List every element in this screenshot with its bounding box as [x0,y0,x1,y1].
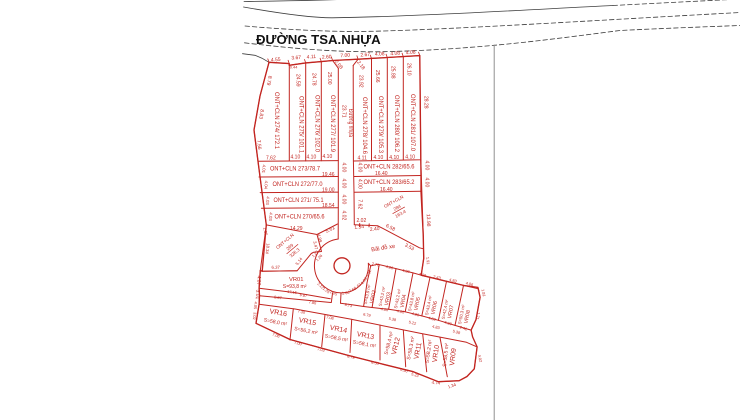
svg-text:19.00: 19.00 [322,187,335,193]
svg-text:23.71: 23.71 [341,105,347,118]
svg-text:24.78: 24.78 [311,73,317,86]
svg-text:ONT+CLN 275/ 101.1: ONT+CLN 275/ 101.1 [298,96,304,154]
svg-text:26.10: 26.10 [406,63,412,76]
svg-text:4.55: 4.55 [271,57,281,64]
svg-text:2.18: 2.18 [355,60,366,72]
svg-text:ONT+CLN 270/65.6: ONT+CLN 270/65.6 [275,214,326,221]
svg-text:25.88: 25.88 [390,66,396,79]
svg-text:ONT+CLN 279/ 105.3: ONT+CLN 279/ 105.3 [377,96,383,154]
svg-text:16.40: 16.40 [375,171,388,177]
svg-text:5.22: 5.22 [408,319,417,326]
svg-text:1.05: 1.05 [329,289,338,296]
svg-text:4.02: 4.02 [477,354,483,362]
svg-text:VR05: VR05 [414,297,422,311]
svg-text:4.00: 4.00 [396,308,405,314]
svg-text:18.34: 18.34 [264,243,270,255]
svg-text:28.28: 28.28 [423,96,429,109]
svg-text:7.62: 7.62 [266,156,276,162]
svg-text:VR14: VR14 [329,325,348,335]
svg-text:7.00: 7.00 [340,53,350,60]
svg-text:VR09: VR09 [449,348,458,366]
svg-text:7.03: 7.03 [317,346,326,353]
svg-text:VR15: VR15 [298,317,317,327]
svg-text:ONT+CLN 280/ 106.2: ONT+CLN 280/ 106.2 [393,95,399,153]
svg-text:4.09: 4.09 [418,271,427,278]
svg-text:6.37: 6.37 [271,265,280,270]
svg-text:4.10: 4.10 [307,154,317,160]
svg-text:4.08: 4.08 [375,51,385,58]
svg-text:4.10: 4.10 [323,154,333,160]
svg-text:4.00: 4.00 [380,306,389,312]
svg-text:3.67: 3.67 [291,55,301,62]
svg-text:16.40: 16.40 [380,187,393,193]
svg-text:6.79: 6.79 [363,312,371,318]
svg-text:5.61: 5.61 [325,225,337,235]
svg-text:3.02: 3.02 [252,312,258,320]
svg-text:ONT+CLN 282/65.6: ONT+CLN 282/65.6 [364,163,416,170]
svg-text:2.31: 2.31 [365,269,372,278]
svg-text:2.67: 2.67 [360,52,370,59]
svg-text:4.00: 4.00 [341,163,347,173]
svg-text:14.29: 14.29 [290,226,303,232]
svg-text:4.00: 4.00 [423,178,429,188]
svg-text:6.58: 6.58 [385,223,397,233]
svg-text:VR06: VR06 [431,301,439,315]
svg-text:8.73: 8.73 [344,302,352,308]
svg-text:1.81: 1.81 [481,289,487,297]
svg-text:VR10: VR10 [432,344,441,362]
svg-text:7.30: 7.30 [297,308,306,315]
svg-text:1.34: 1.34 [447,382,457,390]
svg-text:8.83: 8.83 [257,109,265,120]
svg-text:ONT+CLN 283/65.2: ONT+CLN 283/65.2 [364,179,416,186]
svg-text:13.98: 13.98 [425,214,431,227]
svg-text:18.54: 18.54 [322,203,335,209]
svg-text:3.01: 3.01 [254,289,261,299]
svg-text:24.59: 24.59 [295,74,301,87]
svg-text:4.00: 4.00 [341,179,347,189]
svg-text:4.01: 4.01 [261,164,267,173]
svg-text:17.15: 17.15 [287,289,297,295]
svg-text:1.71: 1.71 [475,312,481,320]
svg-text:2.76: 2.76 [371,261,380,268]
svg-text:25.66: 25.66 [374,70,380,83]
svg-text:4.11: 4.11 [307,54,317,61]
svg-text:Bãi đỗ xe: Bãi đỗ xe [371,243,396,254]
svg-text:4.02: 4.02 [341,211,347,221]
svg-text:2.60: 2.60 [322,54,332,61]
svg-text:8.79: 8.79 [265,75,273,86]
svg-text:4.08: 4.08 [390,51,400,58]
svg-text:1.34: 1.34 [354,224,365,231]
svg-text:7.56: 7.56 [255,140,262,150]
svg-text:5.23: 5.23 [411,371,420,378]
svg-text:VR08: VR08 [464,310,472,324]
svg-text:4.10: 4.10 [389,155,399,161]
svg-text:Đường nhựa: Đường nhựa [347,109,353,138]
svg-text:2.43: 2.43 [433,274,442,281]
svg-text:VR02: VR02 [369,290,377,304]
svg-text:ONT+CLN 273/78.7: ONT+CLN 273/78.7 [270,166,321,173]
svg-text:4.03: 4.03 [268,212,274,221]
svg-text:4.00: 4.00 [402,268,411,275]
svg-text:4.00: 4.00 [411,311,420,318]
svg-text:4.10: 4.10 [374,155,384,161]
svg-text:5.38: 5.38 [452,328,461,335]
svg-text:1.91: 1.91 [425,257,431,265]
svg-text:6.79: 6.79 [347,354,355,360]
svg-text:7.80: 7.80 [308,299,317,305]
svg-text:4.00: 4.00 [356,179,362,189]
svg-text:7.00: 7.00 [294,340,303,347]
svg-text:4.00: 4.00 [423,161,429,171]
svg-text:VR01: VR01 [289,277,304,283]
svg-text:6.50: 6.50 [400,367,409,374]
svg-text:S=56,2 m²: S=56,2 m² [294,326,319,336]
svg-text:S=58,5 m²: S=58,5 m² [324,333,349,343]
svg-text:7.62: 7.62 [357,200,363,210]
svg-text:VR03: VR03 [384,292,392,306]
svg-text:4.03: 4.03 [265,196,271,205]
svg-text:ONT+CLN 278/ 104.6: ONT+CLN 278/ 104.6 [361,97,367,155]
svg-text:4.11: 4.11 [358,156,368,162]
svg-text:4.04: 4.04 [263,180,269,189]
svg-text:ONT+CLN 281/ 107.0: ONT+CLN 281/ 107.0 [409,94,415,152]
svg-text:ONT+CLN 276/ 102.0: ONT+CLN 276/ 102.0 [314,95,320,153]
svg-text:2.40: 2.40 [370,226,381,233]
svg-text:ONT+CLN 277/ 101.9: ONT+CLN 277/ 101.9 [329,95,335,153]
svg-text:ONT+CLN 272/77.0: ONT+CLN 272/77.0 [273,181,324,188]
svg-text:4.00: 4.00 [356,163,362,173]
svg-text:6.87: 6.87 [299,292,307,298]
svg-text:4.83: 4.83 [432,324,441,331]
svg-text:ĐƯỜNG TSA.NHỰA: ĐƯỜNG TSA.NHỰA [256,32,381,47]
svg-text:1.35: 1.35 [262,227,268,237]
svg-text:3.53: 3.53 [404,242,416,252]
svg-text:4.05: 4.05 [253,301,259,309]
svg-text:VR16: VR16 [269,308,288,318]
svg-text:2.02: 2.02 [357,218,367,224]
svg-text:4.74: 4.74 [431,380,440,386]
svg-text:4.07: 4.07 [255,275,262,285]
svg-text:4.10: 4.10 [291,155,301,161]
svg-text:S=58,0 m²: S=58,0 m² [263,317,288,327]
svg-text:25.00: 25.00 [326,72,332,85]
svg-text:0.44: 0.44 [290,65,298,70]
svg-text:ONT+CLN 271/ 75.1: ONT+CLN 271/ 75.1 [274,197,324,204]
svg-text:7.08: 7.08 [326,314,334,320]
svg-text:4.10: 4.10 [405,154,415,160]
svg-text:2.08: 2.08 [333,59,344,70]
svg-text:19.46: 19.46 [322,172,335,178]
svg-text:6.55: 6.55 [371,360,379,366]
svg-text:4.00: 4.00 [341,195,347,205]
svg-text:VR07: VR07 [447,305,455,319]
svg-text:4.00: 4.00 [385,264,394,271]
svg-text:23.92: 23.92 [358,75,364,88]
svg-text:5.38: 5.38 [388,316,396,322]
svg-text:3.47: 3.47 [312,241,319,251]
svg-text:8.87: 8.87 [274,294,282,300]
svg-text:7.06: 7.06 [272,332,281,339]
svg-text:4.00: 4.00 [444,319,453,326]
svg-text:ONT+CLN 274/ 172.1: ONT+CLN 274/ 172.1 [273,92,279,150]
svg-text:4.08: 4.08 [406,50,416,57]
svg-text:4.00: 4.00 [428,315,437,322]
